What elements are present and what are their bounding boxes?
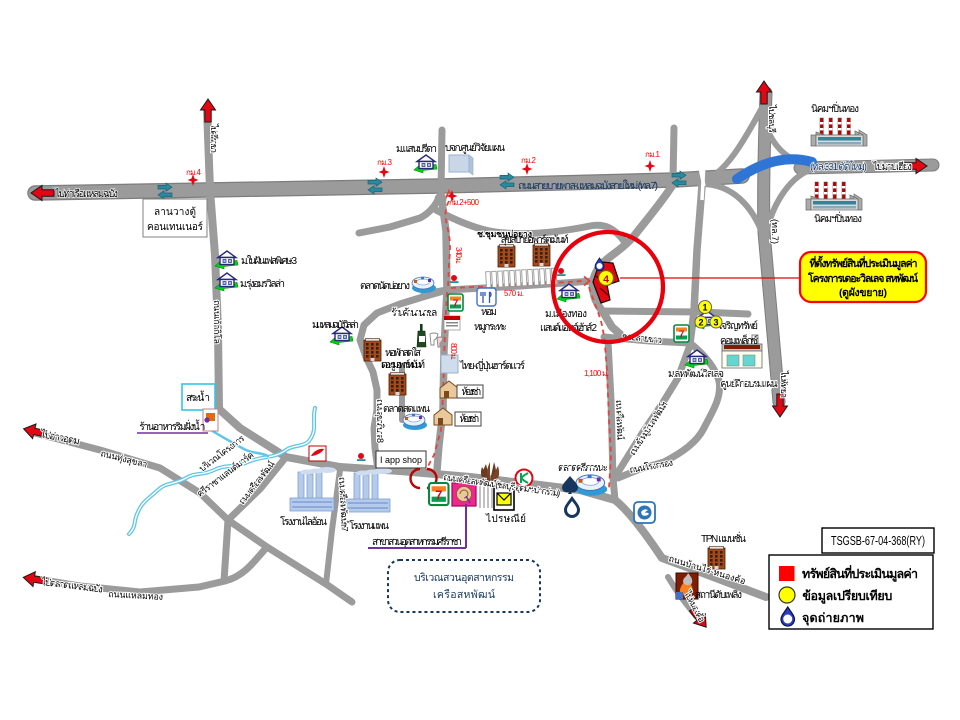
svg-text:4: 4 — [603, 274, 609, 286]
svg-text:ม.แสนปรีดา: ม.แสนปรีดา — [396, 143, 437, 155]
svg-text:ม.เมืองทอง: ม.เมืองทอง — [545, 308, 587, 320]
svg-text:สถานีดับเพลิง: สถานีดับเพลิง — [695, 589, 742, 601]
svg-text:ม.แหลมฉบังวิลล่า: ม.แหลมฉบังวิลล่า — [312, 320, 359, 331]
svg-text:สระน้ำ: สระน้ำ — [186, 390, 210, 404]
svg-text:กม.2: กม.2 — [521, 156, 537, 165]
svg-text:ตลาดศรีภารนะ: ตลาดศรีภารนะ — [558, 462, 608, 474]
svg-text:สุขสบายอพาร์ตเม้นท์: สุขสบายอพาร์ตเม้นท์ — [501, 234, 569, 246]
svg-text:กม.4: กม.4 — [186, 168, 202, 177]
svg-text:ไปพัทยา: ไปพัทยา — [779, 370, 789, 398]
svg-text:3: 3 — [713, 318, 718, 328]
svg-text:โรงงานแพน: โรงงานแพน — [349, 519, 389, 532]
svg-text:ไทย-ญี่ปุ่นฮาร์ดแวร์: ไทย-ญี่ปุ่นฮาร์ดแวร์ — [459, 358, 526, 372]
svg-text:TPN แมนชั่น: TPN แมนชั่น — [701, 531, 746, 545]
svg-text:800 ม.: 800 ม. — [449, 343, 458, 360]
svg-text:TSGSB-67-04-368(RY): TSGSB-67-04-368(RY) — [831, 534, 925, 548]
svg-text:570 ม.: 570 ม. — [504, 289, 524, 298]
svg-text:โรงงานไลอ้อน: โรงงานไลอ้อน — [280, 515, 327, 528]
svg-text:ศูนย์ฝึกอบรมแผน: ศูนย์ฝึกอบรมแผน — [721, 378, 778, 390]
svg-text:ถนนสุขาภิบาล8: ถนนสุขาภิบาล8 — [374, 399, 385, 443]
svg-text:เครือสหพัฒน์: เครือสหพัฒน์ — [433, 588, 495, 601]
svg-text:หอม: หอม — [481, 307, 497, 318]
svg-text:ตลาดสดแพน: ตลาดสดแพน — [383, 404, 430, 415]
svg-text:I app shop: I app shop — [380, 455, 422, 465]
svg-text:โครงการเดอะวิลเลจ สหพัฒน์: โครงการเดอะวิลเลจ สหพัฒน์ — [807, 272, 919, 285]
svg-text:ตลาดนัดบ่อยาง: ตลาดนัดบ่อยาง — [360, 281, 410, 292]
svg-text:ม.ในฝัน เฟสพิเศษ 3: ม.ในฝัน เฟสพิเศษ 3 — [241, 255, 297, 267]
svg-text:ห้องเช่า: ห้องเช่า — [461, 386, 481, 398]
svg-text:ห้องเช่า: ห้องเช่า — [459, 413, 479, 425]
svg-text:1: 1 — [702, 303, 707, 313]
svg-text:ข้อมูลเปรียบเทียบ: ข้อมูลเปรียบเทียบ — [802, 589, 892, 604]
svg-text:คอมเพล็กซ์: คอมเพล็กซ์ — [720, 333, 758, 347]
svg-text:(ดูผังขยาย): (ดูผังขยาย) — [839, 287, 887, 300]
svg-text:340 ม.: 340 ม. — [454, 247, 463, 264]
svg-text:1,100 ม.: 1,100 ม. — [584, 369, 609, 378]
svg-text:กม.1: กม.1 — [645, 150, 661, 159]
svg-text:(ทล.331 ตัดใหม่): (ทล.331 ตัดใหม่) — [810, 160, 867, 173]
svg-text:นิคมฯปิ่นทอง: นิคมฯปิ่นทอง — [814, 211, 862, 225]
svg-text:บริเวณสวนอุตสาหกรรม: บริเวณสวนอุตสาหกรรม — [414, 572, 514, 584]
svg-text:ถนนเครือสหพัฒน์: ถนนเครือสหพัฒน์ — [614, 400, 626, 440]
svg-text:ร้านค้านานาชล: ร้านค้านานาชล — [391, 307, 437, 319]
svg-text:เดอะรูมอพาร์ทเม้นท์: เดอะรูมอพาร์ทเม้นท์ — [381, 359, 425, 371]
svg-text:2: 2 — [698, 318, 703, 328]
svg-text:หอพักสดใส: หอพักสดใส — [385, 347, 421, 359]
svg-text:สาขาสวนอุตสาหกรรมศรีราชา: สาขาสวนอุตสาหกรรมศรีราชา — [372, 536, 462, 548]
svg-text:เจริญทรัพย์: เจริญทรัพย์ — [719, 320, 758, 332]
svg-text:ถนนสายบายพาส-แหลมฉบังสายใหม่ (: ถนนสายบายพาส-แหลมฉบังสายใหม่ (ทล.7) — [518, 179, 658, 192]
svg-text:กม.3: กม.3 — [377, 158, 393, 167]
svg-text:ม.รุ่งอมรวิลล่า: ม.รุ่งอมรวิลล่า — [240, 279, 285, 290]
svg-text:ม.สหพัฒน์วิลเลจ: ม.สหพัฒน์วิลเลจ — [668, 368, 724, 380]
svg-text:ลานวางตู้: ลานวางตู้ — [154, 206, 196, 218]
svg-text:ถนนเก้ากิโล: ถนนเก้ากิโล — [212, 300, 222, 344]
svg-text:จุดถ่ายภาพ: จุดถ่ายภาพ — [802, 611, 864, 626]
svg-text:(ทล.7): (ทล.7) — [770, 219, 780, 244]
svg-text:ทรัพย์สินที่ประเมินมูลค่า: ทรัพย์สินที่ประเมินมูลค่า — [802, 565, 918, 582]
svg-text:ไปรษณีย์: ไปรษณีย์ — [485, 513, 526, 525]
svg-text:บจก.ศูนย์วิจัยแผน: บจก.ศูนย์วิจัยแผน — [445, 142, 505, 154]
svg-text:ไปมาบเฮียง: ไปมาบเฮียง — [872, 161, 912, 173]
svg-text:ที่ตั้งทรัพย์สินที่ประเมินมูลค: ที่ตั้งทรัพย์สินที่ประเมินมูลค่า — [809, 255, 917, 271]
svg-text:ไปท่าเรือแหลมฉบัง: ไปท่าเรือแหลมฉบัง — [54, 188, 118, 200]
svg-text:นิคมฯปิ่นทอง: นิคมฯปิ่นทอง — [811, 101, 859, 115]
svg-text:ไปชลบุรี: ไปชลบุรี — [766, 104, 777, 133]
svg-text:กม.2+500: กม.2+500 — [449, 198, 480, 207]
svg-text:คอนเทนเนอร์: คอนเทนเนอร์ — [147, 221, 204, 233]
svg-text:หมูกระทะ: หมูกระทะ — [474, 322, 507, 333]
svg-text:ร้านอาหารริมฝั่งน้ำ: ร้านอาหารริมฝั่งน้ำ — [139, 419, 205, 433]
svg-text:ไปศรีราชา: ไปศรีราชา — [209, 123, 219, 153]
